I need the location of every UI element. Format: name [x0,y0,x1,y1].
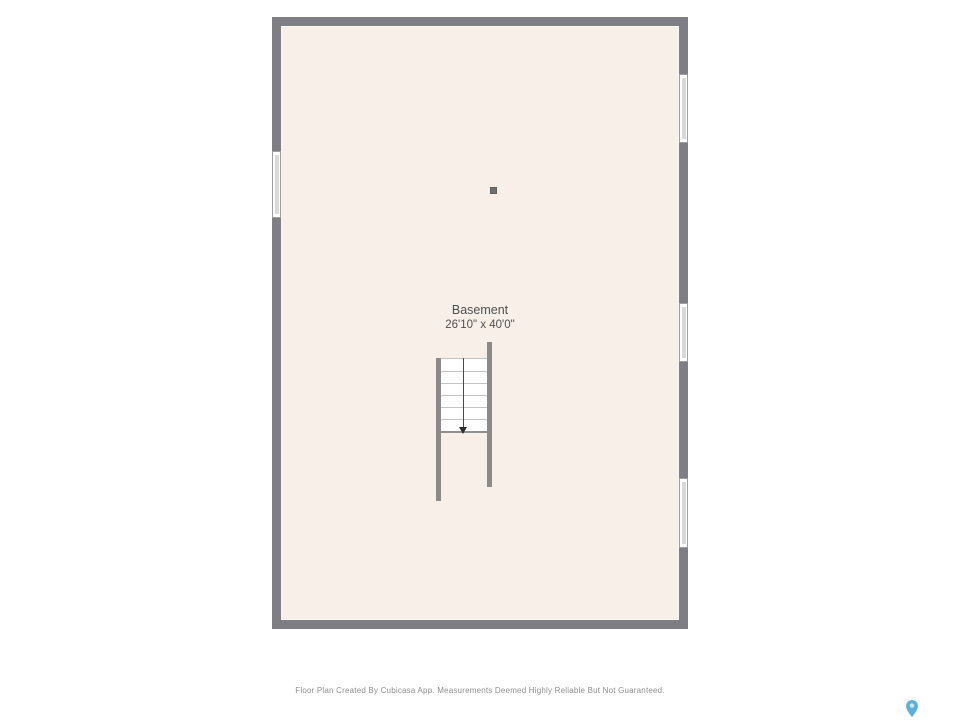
window-pane [682,307,685,358]
window-right-top [679,74,688,143]
window-right-bottom [679,478,688,548]
stair-tread-line [441,371,487,372]
window-right-middle [679,303,688,362]
room-label: Basement 26'10" x 40'0" [281,303,679,333]
floor-plan-page: Basement 26'10" x 40'0" Floor Plan Creat… [0,0,960,720]
stairs-direction-arrow-line [463,358,464,427]
window-pane [682,482,685,544]
window-left [272,151,281,218]
window-pane [682,78,685,139]
stair-tread-line [441,419,487,420]
window-pane [275,155,278,214]
basement-room: Basement 26'10" x 40'0" [272,17,688,629]
stair-tread-line [441,407,487,408]
support-column [490,187,497,194]
stairs-treads [441,358,487,433]
stair-tread-line [441,395,487,396]
cubicasa-logo-pin-icon [906,700,918,717]
footer-disclaimer: Floor Plan Created By Cubicasa App. Meas… [0,686,960,695]
stair-tread-line [441,383,487,384]
stairs-wall-right [487,342,492,487]
room-name: Basement [281,303,679,318]
room-dimensions: 26'10" x 40'0" [281,318,679,333]
stairs-direction-arrow-head [459,427,467,434]
